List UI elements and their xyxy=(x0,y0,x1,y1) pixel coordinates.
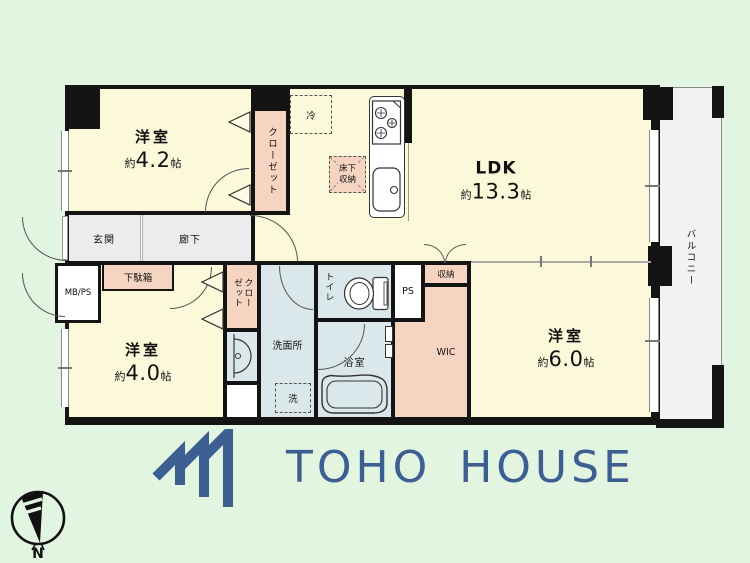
compass-icon: N xyxy=(8,488,74,562)
hallway-label: 廊下 xyxy=(179,231,201,246)
company-logo-text: TOHO HOUSE xyxy=(286,442,635,493)
bedroom-4_0-label: 洋室 約4.0帖 xyxy=(115,339,172,385)
window-tick xyxy=(645,340,660,342)
window-tick xyxy=(58,367,72,369)
entrance-label: 玄関 xyxy=(93,231,115,246)
folding-door-icon xyxy=(201,271,224,293)
room-size: 約13.3帖 xyxy=(461,180,532,204)
door-arc-meter-space xyxy=(22,273,65,317)
bedroom-4_2-label: 洋室 約4.2帖 xyxy=(125,126,182,172)
pillar-mid-right xyxy=(648,246,672,286)
underfloor-storage-label: 床下収納 xyxy=(338,164,357,185)
partition-tick xyxy=(540,256,542,267)
storage-label: 収納 xyxy=(437,268,454,280)
washer-label: 洗 xyxy=(288,391,298,405)
bathtub-icon xyxy=(320,373,389,415)
underfloor-storage: 床下収納 xyxy=(329,156,366,193)
room-name: LDK xyxy=(461,159,532,179)
toilet-label: トイレ xyxy=(323,272,333,302)
room-name: 洋室 xyxy=(115,339,172,360)
bedroom-6_0-label: 洋室 約6.0帖 xyxy=(538,325,595,371)
closet-label: クローゼット xyxy=(232,278,253,316)
stove-icon xyxy=(371,99,403,147)
entrance-hallway: 玄関 廊下 xyxy=(69,215,251,261)
window xyxy=(649,298,659,412)
room-size: 約6.0帖 xyxy=(538,347,595,371)
room-size: 約4.2帖 xyxy=(125,148,182,172)
pillar-top-left xyxy=(65,85,100,129)
partition-tick xyxy=(590,256,592,267)
refrigerator-label: 冷 xyxy=(306,108,316,122)
floorplan-image: バルコニー クローゼット 玄関 廊下 クローゼット 洗面所 トイレ 浴室 xyxy=(0,0,750,563)
shoe-cabinet: 下駄箱 xyxy=(102,263,174,291)
room-size: 約4.0帖 xyxy=(115,361,172,385)
closet-bedroom-4_0: クローゼット xyxy=(227,265,257,328)
bath-shelf xyxy=(385,326,393,342)
room-name: 洋室 xyxy=(538,325,595,346)
compass-north-label: N xyxy=(32,546,44,562)
kitchen-edge-line xyxy=(408,143,410,221)
balcony-bottom-wall xyxy=(656,419,724,428)
void-space xyxy=(227,385,257,417)
sliding-partition xyxy=(471,261,651,263)
balcony-wall-cap xyxy=(712,86,724,118)
window-tick xyxy=(645,185,660,187)
pipe-space-label: PS xyxy=(402,286,414,297)
washer-space: 洗 xyxy=(275,383,311,413)
washroom-label: 洗面所 xyxy=(261,337,314,352)
window-tick xyxy=(58,170,72,172)
pillar-top-right xyxy=(643,87,673,120)
closet-bedroom-4_2: クローゼット xyxy=(255,111,286,211)
folding-door-icon xyxy=(228,111,251,133)
folding-door-icon xyxy=(201,308,224,330)
entrance-step-line xyxy=(140,215,143,261)
kitchen-sink-icon xyxy=(371,166,403,213)
toilet-icon xyxy=(343,276,390,313)
refrigerator-space: 冷 xyxy=(290,95,332,134)
balcony-label: バルコニー xyxy=(684,229,695,287)
folding-door-icon xyxy=(228,184,251,206)
ldk-label: LDK 約13.3帖 xyxy=(461,159,532,204)
unit-outline: クローゼット 玄関 廊下 クローゼット 洗面所 トイレ 浴室 PS 収納 xyxy=(65,85,660,425)
room-name: 洋室 xyxy=(125,126,182,147)
door-arc-entrance xyxy=(22,217,67,261)
bath-shelf xyxy=(385,344,393,358)
toho-house-logo-icon xyxy=(150,429,242,509)
kitchen-wall-stub xyxy=(404,85,412,143)
pipe-space: PS xyxy=(395,265,421,318)
walk-in-closet: WIC xyxy=(425,287,467,417)
meter-pipe-space-label: MB/PS xyxy=(65,288,92,298)
closet-label: クローゼット xyxy=(265,127,276,196)
washbasin-icon xyxy=(229,333,256,379)
wic-label: WIC xyxy=(437,347,456,358)
shoe-cabinet-label: 下駄箱 xyxy=(124,270,153,284)
storage: 収納 xyxy=(425,265,467,283)
walk-in-closet-extension xyxy=(395,322,425,417)
